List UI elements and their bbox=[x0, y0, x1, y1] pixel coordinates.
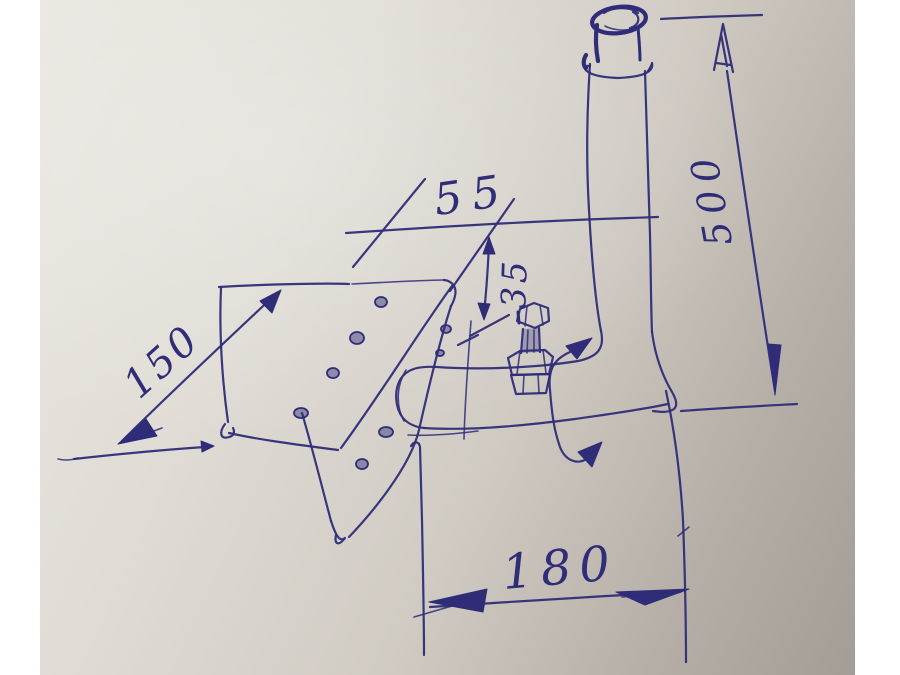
pipe-vertical bbox=[587, 64, 652, 332]
arrowhead bbox=[201, 441, 214, 452]
plate-hole bbox=[350, 332, 364, 344]
dimension-150: 150 bbox=[58, 290, 281, 460]
arrowhead bbox=[478, 303, 490, 320]
arrowhead bbox=[566, 338, 592, 359]
bolt-valve bbox=[508, 303, 553, 394]
dimension-180: 180 bbox=[411, 391, 689, 662]
arrowhead bbox=[578, 442, 602, 467]
mounting-plate bbox=[219, 280, 456, 543]
plate-hole bbox=[441, 325, 451, 333]
dim-500-label: 500 bbox=[681, 147, 741, 250]
arrowhead bbox=[429, 589, 487, 612]
pipe-nozzle bbox=[584, 4, 652, 78]
plate-hole bbox=[327, 368, 339, 378]
arrowhead bbox=[260, 290, 281, 313]
dim-35-label: 35 bbox=[494, 257, 536, 310]
plate-hole bbox=[356, 459, 368, 469]
dim-55-label: 55 bbox=[431, 165, 513, 226]
screenshot: 150 55 35 500 bbox=[0, 0, 900, 675]
dimension-500: 500 bbox=[661, 15, 797, 411]
arrowhead bbox=[768, 344, 781, 395]
flow-direction-arrow bbox=[550, 338, 602, 467]
dim-180-label: 180 bbox=[500, 535, 620, 601]
plate-hole bbox=[379, 427, 393, 437]
plate-hole bbox=[375, 297, 387, 307]
dim-150-label: 150 bbox=[115, 316, 209, 407]
plate-hole bbox=[436, 350, 444, 356]
sketch-drawing: 150 55 35 500 bbox=[0, 0, 900, 675]
plate-hole bbox=[294, 408, 308, 418]
